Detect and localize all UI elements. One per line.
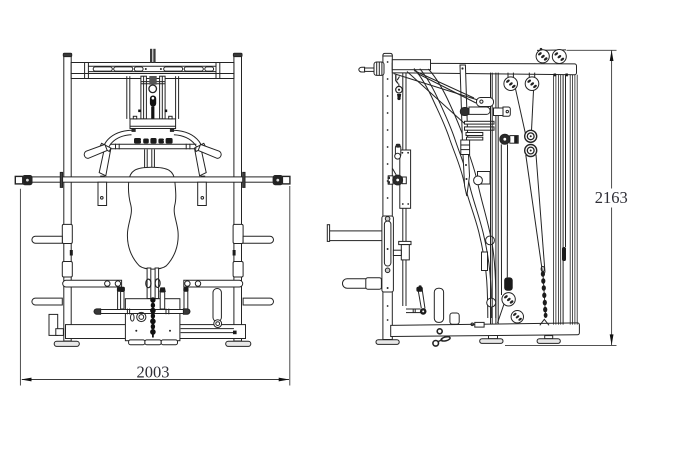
svg-text:2003: 2003 bbox=[137, 363, 170, 382]
svg-text:2163: 2163 bbox=[595, 188, 628, 207]
